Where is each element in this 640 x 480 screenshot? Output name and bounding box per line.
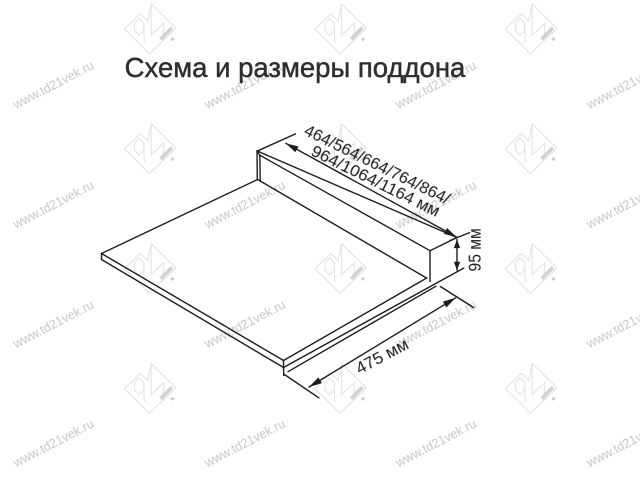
svg-text:Схема и размеры поддона: Схема и размеры поддона	[125, 52, 466, 83]
svg-text:95 мм: 95 мм	[465, 228, 485, 271]
